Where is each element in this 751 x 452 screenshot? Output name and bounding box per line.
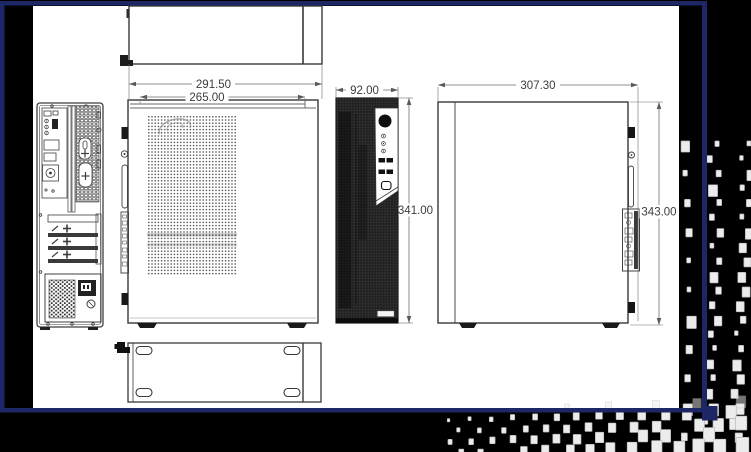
- dim-label-front-width: 92.00: [350, 85, 379, 97]
- power-button: [379, 115, 392, 128]
- side-foot: [287, 323, 307, 328]
- spec-sheet: 291.50 265.00 92.00: [0, 0, 751, 452]
- side-foot: [137, 323, 157, 328]
- front-logo-badge: [378, 311, 395, 317]
- frame-right: [702, 1, 707, 417]
- frame-bottom: [0, 408, 708, 413]
- front-drive-bay: [339, 112, 351, 308]
- dim-label-side-depth: 307.30: [520, 80, 555, 92]
- frame-left: [0, 1, 5, 412]
- dim-label-top-width: 291.50: [196, 79, 231, 91]
- dim-label-front-height: 341.00: [398, 205, 433, 217]
- dimension-drawing-canvas: 291.50 265.00 92.00: [0, 0, 751, 452]
- front-headset-jack: [382, 182, 392, 190]
- dim-label-chassis-width: 265.00: [189, 92, 224, 104]
- rear-vent-grid: [76, 106, 101, 202]
- front-audio-leds: [382, 134, 386, 153]
- side-mesh-vent: [147, 116, 237, 275]
- right-foot: [459, 323, 477, 328]
- dim-label-side-height: 343.00: [641, 207, 676, 219]
- right-foot: [602, 323, 620, 328]
- front-view: [336, 98, 398, 323]
- frame-corner-square: [702, 406, 718, 421]
- frame-top: [0, 1, 707, 6]
- top-view-latch: [127, 9, 130, 18]
